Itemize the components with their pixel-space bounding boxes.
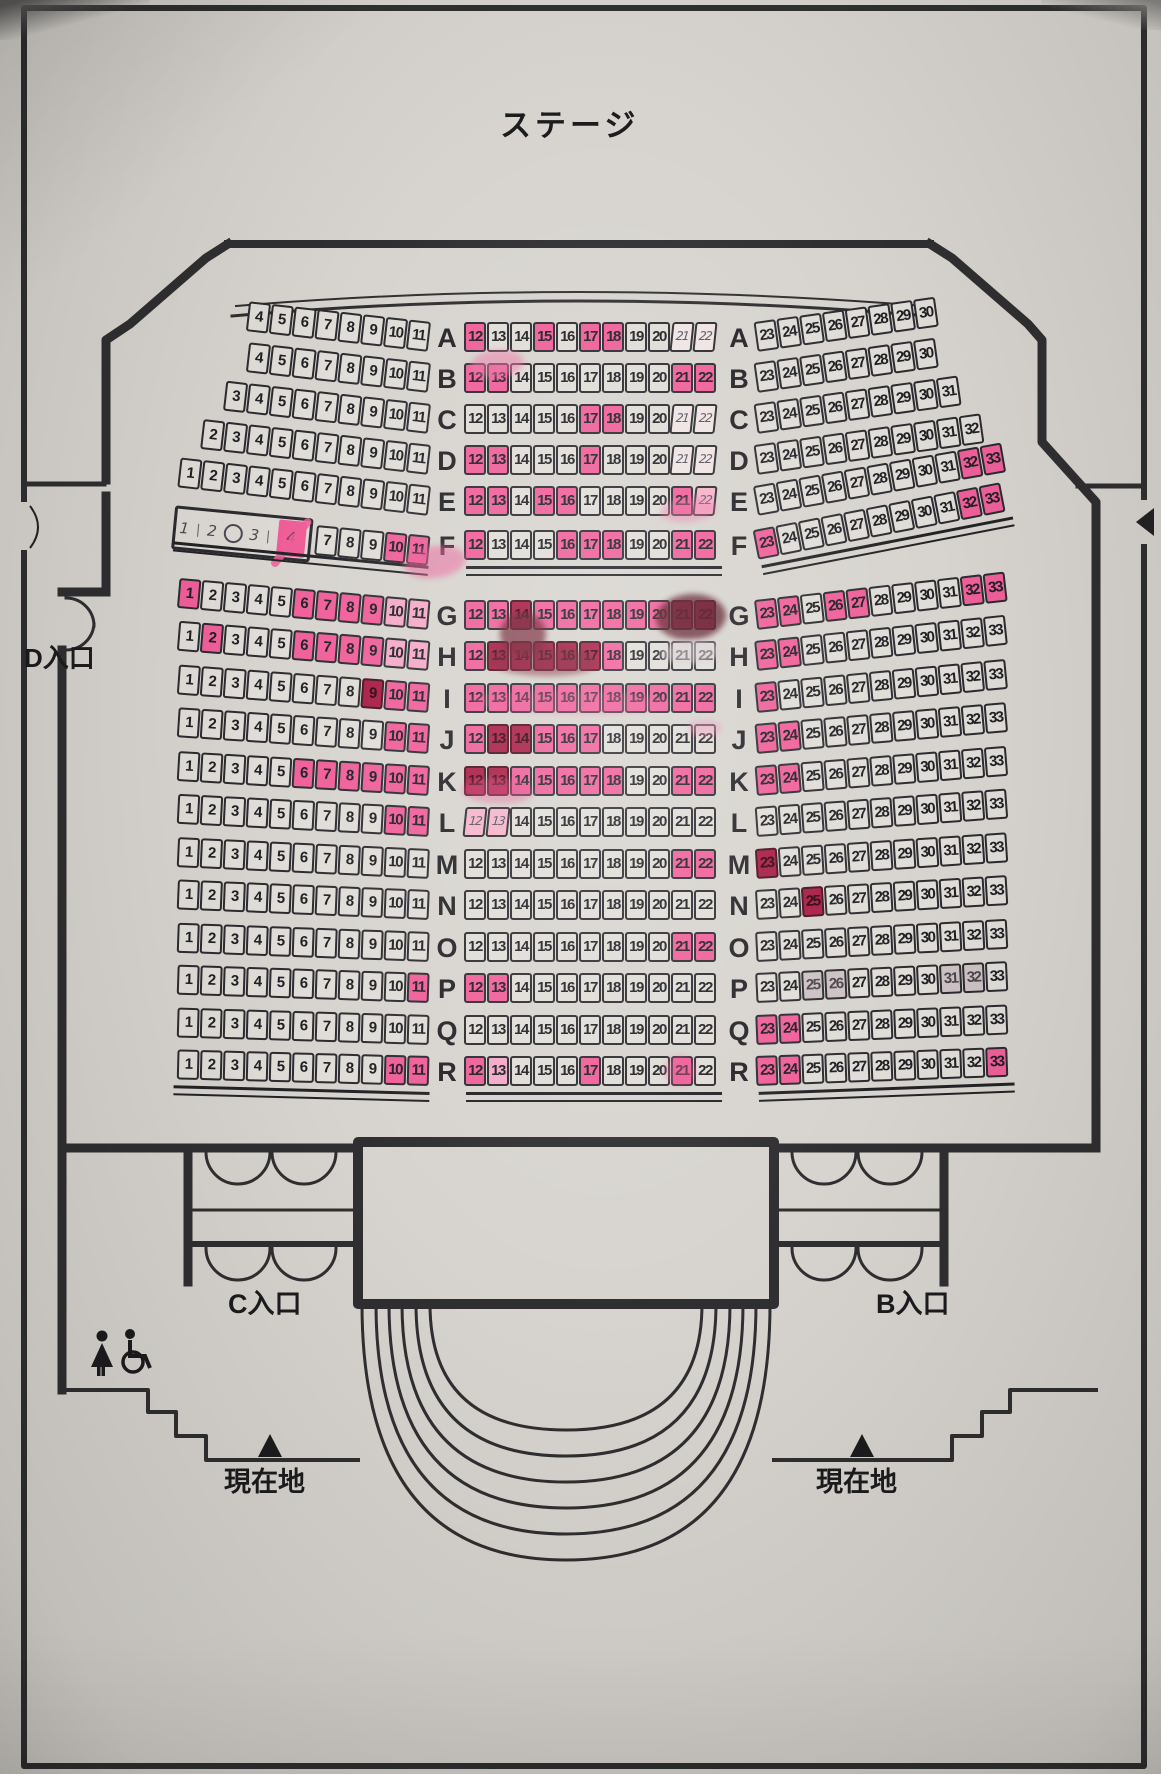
seat-A-4: 4: [246, 301, 271, 333]
seat-G-20: 20: [648, 600, 670, 630]
seat-M-8: 8: [338, 845, 361, 876]
seat-C-12: 12: [464, 404, 486, 434]
row-label-G-2: G: [722, 600, 756, 632]
seat-I-29: 29: [892, 668, 917, 700]
seat-J-16: 16: [556, 724, 578, 754]
seat-O-33: 33: [985, 919, 1009, 950]
seat-M-17: 17: [579, 849, 601, 879]
seat-O-1: 1: [177, 923, 200, 954]
seat-O-16: 16: [556, 932, 578, 962]
seat-G-10: 10: [383, 596, 408, 628]
seat-R-9: 9: [361, 1054, 384, 1085]
seat-R-3: 3: [223, 1051, 246, 1082]
seat-J-26: 26: [823, 716, 848, 748]
seat-N-15: 15: [533, 890, 555, 920]
seat-D-30: 30: [913, 420, 939, 453]
seat-M-11: 11: [406, 848, 429, 879]
seat-B-11: 11: [406, 361, 431, 393]
seat-L-25: 25: [801, 802, 825, 834]
seat-Q-5: 5: [269, 1010, 292, 1041]
seat-D-4: 4: [246, 424, 271, 456]
seat-M-9: 9: [361, 846, 384, 877]
seat-I-32: 32: [960, 661, 985, 693]
seat-Q-16: 16: [556, 1015, 578, 1045]
seat-J-22: 22: [694, 724, 716, 754]
seat-G-16: 16: [556, 600, 578, 630]
seat-J-10: 10: [383, 721, 407, 752]
seat-L-30: 30: [915, 794, 939, 826]
seat-L-23: 23: [755, 805, 779, 837]
row-label-N-2: N: [722, 890, 756, 922]
row-R-right-block: 2324252627282930313233: [755, 1047, 1014, 1086]
seat-L-10: 10: [383, 805, 407, 836]
seat-P-4: 4: [246, 967, 269, 998]
seat-N-20: 20: [648, 890, 670, 920]
seat-L-17: 17: [579, 807, 601, 837]
seat-D-14: 14: [510, 445, 532, 475]
row-label-D-1: D: [430, 445, 464, 477]
row-H-center-block: 1213141516171819202122: [464, 641, 722, 671]
seat-J-19: 19: [625, 724, 647, 754]
seat-O-19: 19: [625, 932, 647, 962]
seat-J-32: 32: [961, 704, 986, 736]
seat-E-20: 20: [648, 486, 670, 516]
seat-M-28: 28: [870, 840, 894, 871]
seat-M-27: 27: [847, 841, 871, 872]
seat-L-26: 26: [823, 800, 847, 832]
seat-K-27: 27: [846, 757, 870, 789]
row-N-center-block: 1213141516171819202122: [464, 890, 722, 920]
seat-J-14: 14: [510, 724, 532, 754]
seat-Q-20: 20: [648, 1015, 670, 1045]
seat-P-14: 14: [510, 973, 532, 1003]
seat-I-15: 15: [533, 683, 555, 713]
seat-M-5: 5: [269, 841, 292, 872]
seat-N-22: 22: [694, 890, 716, 920]
seat-L-32: 32: [961, 790, 985, 822]
seat-E-13: 13: [487, 486, 509, 516]
seat-J-31: 31: [938, 706, 963, 738]
seat-M-20: 20: [648, 849, 670, 879]
seat-R-8: 8: [338, 1054, 361, 1085]
seat-R-15: 15: [533, 1056, 555, 1086]
seat-O-2: 2: [200, 924, 223, 955]
seat-G-1: 1: [177, 578, 202, 610]
seat-N-18: 18: [602, 890, 624, 920]
seat-L-7: 7: [315, 801, 339, 832]
seat-Q-14: 14: [510, 1015, 532, 1045]
seat-N-14: 14: [510, 890, 532, 920]
seat-O-15: 15: [533, 932, 555, 962]
seat-M-33: 33: [984, 832, 1008, 863]
seat-E-19: 19: [625, 486, 647, 516]
seat-F-13: 13: [487, 530, 509, 560]
seat-I-28: 28: [869, 670, 894, 702]
seat-Q-15: 15: [533, 1015, 555, 1045]
seat-K-19: 19: [625, 766, 647, 796]
seat-P-24: 24: [778, 971, 801, 1002]
seat-I-22: 22: [694, 683, 716, 713]
seat-Q-24: 24: [778, 1013, 801, 1044]
seat-D-22: 22: [692, 445, 717, 475]
seat-R-13: 13: [487, 1056, 509, 1086]
seat-A-25: 25: [799, 313, 825, 346]
seat-N-30: 30: [916, 879, 940, 910]
seat-C-10: 10: [383, 399, 408, 431]
seat-C-15: 15: [533, 404, 555, 434]
seat-D-31: 31: [936, 417, 962, 450]
seat-N-1: 1: [177, 879, 200, 910]
seat-H-30: 30: [914, 622, 939, 654]
seat-A-16: 16: [556, 322, 578, 352]
seat-N-6: 6: [292, 884, 315, 915]
seat-K-1: 1: [177, 751, 201, 782]
seat-I-31: 31: [937, 663, 962, 695]
seat-Q-29: 29: [893, 1008, 916, 1039]
seat-P-19: 19: [625, 973, 647, 1003]
seat-C-16: 16: [556, 404, 578, 434]
row-E-center-block: 1213141516171819202122: [464, 486, 722, 516]
seat-I-7: 7: [314, 675, 338, 707]
seat-row-M: 1234567891011M1213141516171819202122M232…: [172, 849, 1014, 885]
seat-M-19: 19: [625, 849, 647, 879]
seat-H-24: 24: [777, 636, 802, 668]
seat-C-26: 26: [822, 392, 848, 425]
seat-C-9: 9: [360, 396, 385, 428]
seat-H-14: 14: [510, 641, 532, 671]
seat-H-1: 1: [177, 621, 201, 653]
seat-P-16: 16: [556, 973, 578, 1003]
row-label-J-1: J: [430, 724, 464, 756]
seat-B-14: 14: [510, 363, 532, 393]
seat-G-29: 29: [891, 582, 916, 614]
seat-E-18: 18: [602, 486, 624, 516]
seat-H-12: 12: [464, 641, 486, 671]
seat-I-19: 19: [625, 683, 647, 713]
seat-D-10: 10: [383, 440, 408, 472]
seat-C-24: 24: [776, 398, 802, 431]
row-label-L-1: L: [430, 807, 464, 839]
row-Q-left-block: 1234567891011: [172, 1007, 431, 1045]
seat-R-2: 2: [200, 1050, 223, 1081]
seat-F-21: 21: [671, 530, 693, 560]
seat-B-12: 12: [464, 363, 486, 393]
seat-E-16: 16: [556, 486, 578, 516]
seat-B-16: 16: [556, 363, 578, 393]
seat-B-20: 20: [648, 363, 670, 393]
seat-K-29: 29: [892, 753, 916, 785]
row-label-B-1: B: [430, 363, 464, 395]
seat-Q-33: 33: [985, 1004, 1008, 1035]
seat-J-7: 7: [314, 716, 338, 747]
seat-B-25: 25: [799, 354, 825, 387]
seat-Q-19: 19: [625, 1015, 647, 1045]
seat-P-23: 23: [755, 972, 778, 1003]
seat-Q-9: 9: [361, 1013, 384, 1044]
seat-L-2: 2: [200, 795, 224, 826]
seat-C-20: 20: [648, 404, 670, 434]
seat-D-5: 5: [269, 427, 294, 459]
seat-R-14: 14: [510, 1056, 532, 1086]
seat-N-17: 17: [579, 890, 601, 920]
seat-B-9: 9: [360, 355, 385, 387]
seat-I-33: 33: [983, 659, 1008, 691]
seat-I-4: 4: [246, 670, 270, 702]
seat-K-5: 5: [269, 756, 293, 787]
seat-O-7: 7: [315, 928, 338, 959]
seat-M-30: 30: [915, 837, 939, 868]
seat-G-6: 6: [291, 588, 316, 620]
seat-F-22: 22: [694, 530, 716, 560]
seat-N-24: 24: [778, 887, 802, 918]
seat-D-19: 19: [625, 445, 647, 475]
seat-N-3: 3: [223, 881, 246, 912]
seat-R-21: 21: [671, 1056, 693, 1086]
seat-M-22: 22: [694, 849, 716, 879]
seat-K-21: 21: [671, 766, 693, 796]
seat-J-8: 8: [337, 718, 361, 749]
seat-A-14: 14: [510, 322, 532, 352]
seat-L-9: 9: [360, 803, 384, 834]
seat-R-7: 7: [315, 1053, 338, 1084]
seat-H-16: 16: [556, 641, 578, 671]
seat-H-11: 11: [406, 639, 430, 671]
seat-G-11: 11: [406, 598, 431, 630]
seat-O-25: 25: [801, 928, 825, 959]
seat-Q-27: 27: [847, 1010, 870, 1041]
seat-P-6: 6: [292, 968, 315, 999]
seat-K-33: 33: [984, 746, 1008, 778]
seat-M-4: 4: [246, 840, 269, 871]
seat-M-23: 23: [755, 848, 779, 879]
seat-P-5: 5: [269, 968, 292, 999]
seat-R-10: 10: [384, 1055, 407, 1086]
seat-B-10: 10: [383, 358, 408, 390]
seat-O-17: 17: [579, 932, 601, 962]
seat-M-25: 25: [801, 845, 825, 876]
seat-F-19: 19: [625, 530, 647, 560]
row-label-N-1: N: [430, 890, 464, 922]
seat-R-1: 1: [177, 1049, 200, 1080]
seat-J-24: 24: [777, 720, 802, 752]
seat-N-11: 11: [407, 889, 430, 920]
seat-O-32: 32: [962, 920, 986, 951]
seat-M-29: 29: [893, 838, 917, 869]
seat-C-8: 8: [337, 394, 362, 426]
row-P-center-block: 1213141516171819202122: [464, 973, 722, 1003]
seat-O-13: 13: [487, 932, 509, 962]
seat-G-3: 3: [223, 582, 248, 614]
row-label-B-2: B: [722, 363, 756, 395]
seat-D-7: 7: [314, 432, 339, 464]
seat-P-29: 29: [893, 965, 916, 996]
seat-A-10: 10: [383, 317, 408, 349]
seat-N-31: 31: [939, 878, 963, 909]
seat-M-21: 21: [671, 849, 693, 879]
seat-L-33: 33: [984, 789, 1008, 821]
seat-P-7: 7: [315, 969, 338, 1000]
seat-K-7: 7: [314, 759, 338, 790]
aisle-double-line: [466, 1092, 722, 1102]
row-label-I-1: I: [430, 683, 464, 715]
seat-E-7: 7: [314, 473, 339, 505]
seat-G-32: 32: [960, 574, 985, 606]
seat-I-3: 3: [223, 668, 247, 700]
seat-H-3: 3: [223, 624, 247, 656]
seat-A-6: 6: [292, 306, 317, 338]
row-P-left-block: 1234567891011: [172, 964, 431, 1003]
seat-R-5: 5: [269, 1052, 292, 1083]
seat-P-25: 25: [801, 970, 824, 1001]
wheelchair-doodle-icon: [223, 523, 244, 544]
seat-E-17: 17: [579, 486, 601, 516]
seat-J-30: 30: [915, 708, 940, 740]
seat-J-29: 29: [892, 710, 917, 742]
entrance-c-label: C入口: [228, 1282, 302, 1321]
row-label-H-2: H: [722, 641, 756, 673]
seat-E-33: 33: [979, 443, 1006, 476]
seat-I-2: 2: [200, 666, 224, 698]
seat-I-14: 14: [510, 683, 532, 713]
seat-Q-8: 8: [338, 1012, 361, 1043]
seat-P-1: 1: [177, 965, 200, 996]
row-label-F-1: F: [430, 530, 464, 562]
seat-E-6: 6: [292, 470, 317, 502]
seat-A-15: 15: [533, 322, 555, 352]
seat-K-20: 20: [648, 766, 670, 796]
seat-Q-30: 30: [916, 1007, 939, 1038]
seat-O-12: 12: [464, 932, 486, 962]
row-J-center-block: 1213141516171819202122: [464, 724, 722, 754]
seat-N-21: 21: [671, 890, 693, 920]
seat-J-1: 1: [177, 707, 201, 738]
seat-N-7: 7: [315, 885, 338, 916]
seat-B-27: 27: [845, 347, 871, 380]
seat-L-3: 3: [223, 796, 247, 827]
seat-D-9: 9: [360, 437, 385, 469]
seat-row-N: 1234567891011N1213141516171819202122N232…: [172, 890, 1014, 926]
seat-O-28: 28: [870, 925, 894, 956]
seat-O-5: 5: [269, 926, 292, 957]
seat-G-22: 22: [694, 600, 716, 630]
seat-R-11: 11: [407, 1055, 430, 1086]
seat-R-31: 31: [939, 1048, 962, 1079]
row-label-Q-1: Q: [430, 1015, 464, 1047]
seat-P-26: 26: [824, 969, 847, 1000]
current-location-label-right: 現在地: [816, 1460, 897, 1499]
seat-G-28: 28: [868, 585, 893, 617]
seat-D-27: 27: [845, 429, 871, 462]
seat-P-18: 18: [602, 973, 624, 1003]
seat-O-11: 11: [407, 931, 430, 962]
seat-F-14: 14: [510, 530, 532, 560]
seat-B-24: 24: [776, 357, 802, 390]
seat-E-12: 12: [464, 486, 486, 516]
seat-R-23: 23: [755, 1055, 778, 1086]
seat-K-8: 8: [337, 761, 361, 792]
seat-H-7: 7: [314, 632, 338, 664]
seat-P-31: 31: [939, 963, 962, 994]
seat-D-32: 32: [958, 413, 984, 446]
seat-M-31: 31: [938, 835, 962, 866]
seat-L-19: 19: [625, 807, 647, 837]
seat-L-28: 28: [869, 797, 893, 829]
seat-C-14: 14: [510, 404, 532, 434]
row-F-center-block: 1213141516171819202122: [464, 530, 722, 560]
seat-J-17: 17: [579, 724, 601, 754]
seat-B-29: 29: [890, 341, 916, 374]
seat-A-5: 5: [269, 304, 294, 336]
seat-E-8: 8: [337, 476, 362, 508]
row-L-center-block: 1213141516171819202122: [464, 807, 722, 837]
seat-C-17: 17: [579, 404, 601, 434]
seat-Q-26: 26: [824, 1011, 847, 1042]
seat-N-4: 4: [246, 882, 269, 913]
seat-N-32: 32: [962, 876, 986, 907]
seat-F-20: 20: [648, 530, 670, 560]
seat-N-16: 16: [556, 890, 578, 920]
seat-L-22: 22: [694, 807, 716, 837]
seat-R-17: 17: [579, 1056, 601, 1086]
seat-H-10: 10: [383, 637, 407, 669]
stage-label: ステージ: [500, 100, 639, 145]
seat-P-22: 22: [694, 973, 716, 1003]
seat-row-L: 1234567891011L1213141516171819202122L232…: [172, 807, 1014, 843]
seat-N-13: 13: [487, 890, 509, 920]
seat-K-22: 22: [694, 766, 716, 796]
seat-B-30: 30: [913, 338, 939, 371]
seat-L-5: 5: [269, 799, 293, 830]
row-label-F-2: F: [722, 530, 756, 562]
seat-I-30: 30: [915, 666, 940, 698]
seat-B-7: 7: [314, 350, 339, 382]
seat-I-13: 13: [487, 683, 509, 713]
seat-E-1: 1: [177, 457, 202, 489]
seat-O-18: 18: [602, 932, 624, 962]
seat-H-2: 2: [200, 623, 224, 655]
seat-Q-6: 6: [292, 1011, 315, 1042]
seat-R-6: 6: [292, 1052, 315, 1083]
seat-L-24: 24: [778, 804, 802, 836]
seat-I-8: 8: [337, 676, 361, 708]
seat-I-9: 9: [360, 678, 384, 710]
seat-O-14: 14: [510, 932, 532, 962]
seat-P-33: 33: [985, 961, 1008, 992]
seat-G-31: 31: [937, 577, 962, 609]
seat-B-5: 5: [269, 345, 294, 377]
seat-B-18: 18: [602, 363, 624, 393]
seat-G-4: 4: [246, 584, 271, 616]
seat-B-28: 28: [867, 344, 893, 377]
entrance-d-label: D入口: [24, 638, 95, 675]
row-label-I-2: I: [722, 683, 756, 715]
seat-R-18: 18: [602, 1056, 624, 1086]
seat-H-29: 29: [891, 624, 916, 656]
seat-H-25: 25: [800, 634, 825, 666]
seat-I-25: 25: [800, 677, 825, 709]
row-label-H-1: H: [430, 641, 464, 673]
seat-Q-7: 7: [315, 1012, 338, 1043]
seat-I-18: 18: [602, 683, 624, 713]
seat-R-33: 33: [985, 1047, 1008, 1078]
seat-A-13: 13: [487, 322, 509, 352]
seat-H-26: 26: [823, 632, 848, 664]
seat-P-27: 27: [847, 968, 870, 999]
entrance-b-label: B入口: [876, 1282, 950, 1321]
seat-H-28: 28: [868, 627, 893, 659]
seat-O-30: 30: [916, 922, 940, 953]
seat-I-5: 5: [269, 671, 293, 703]
